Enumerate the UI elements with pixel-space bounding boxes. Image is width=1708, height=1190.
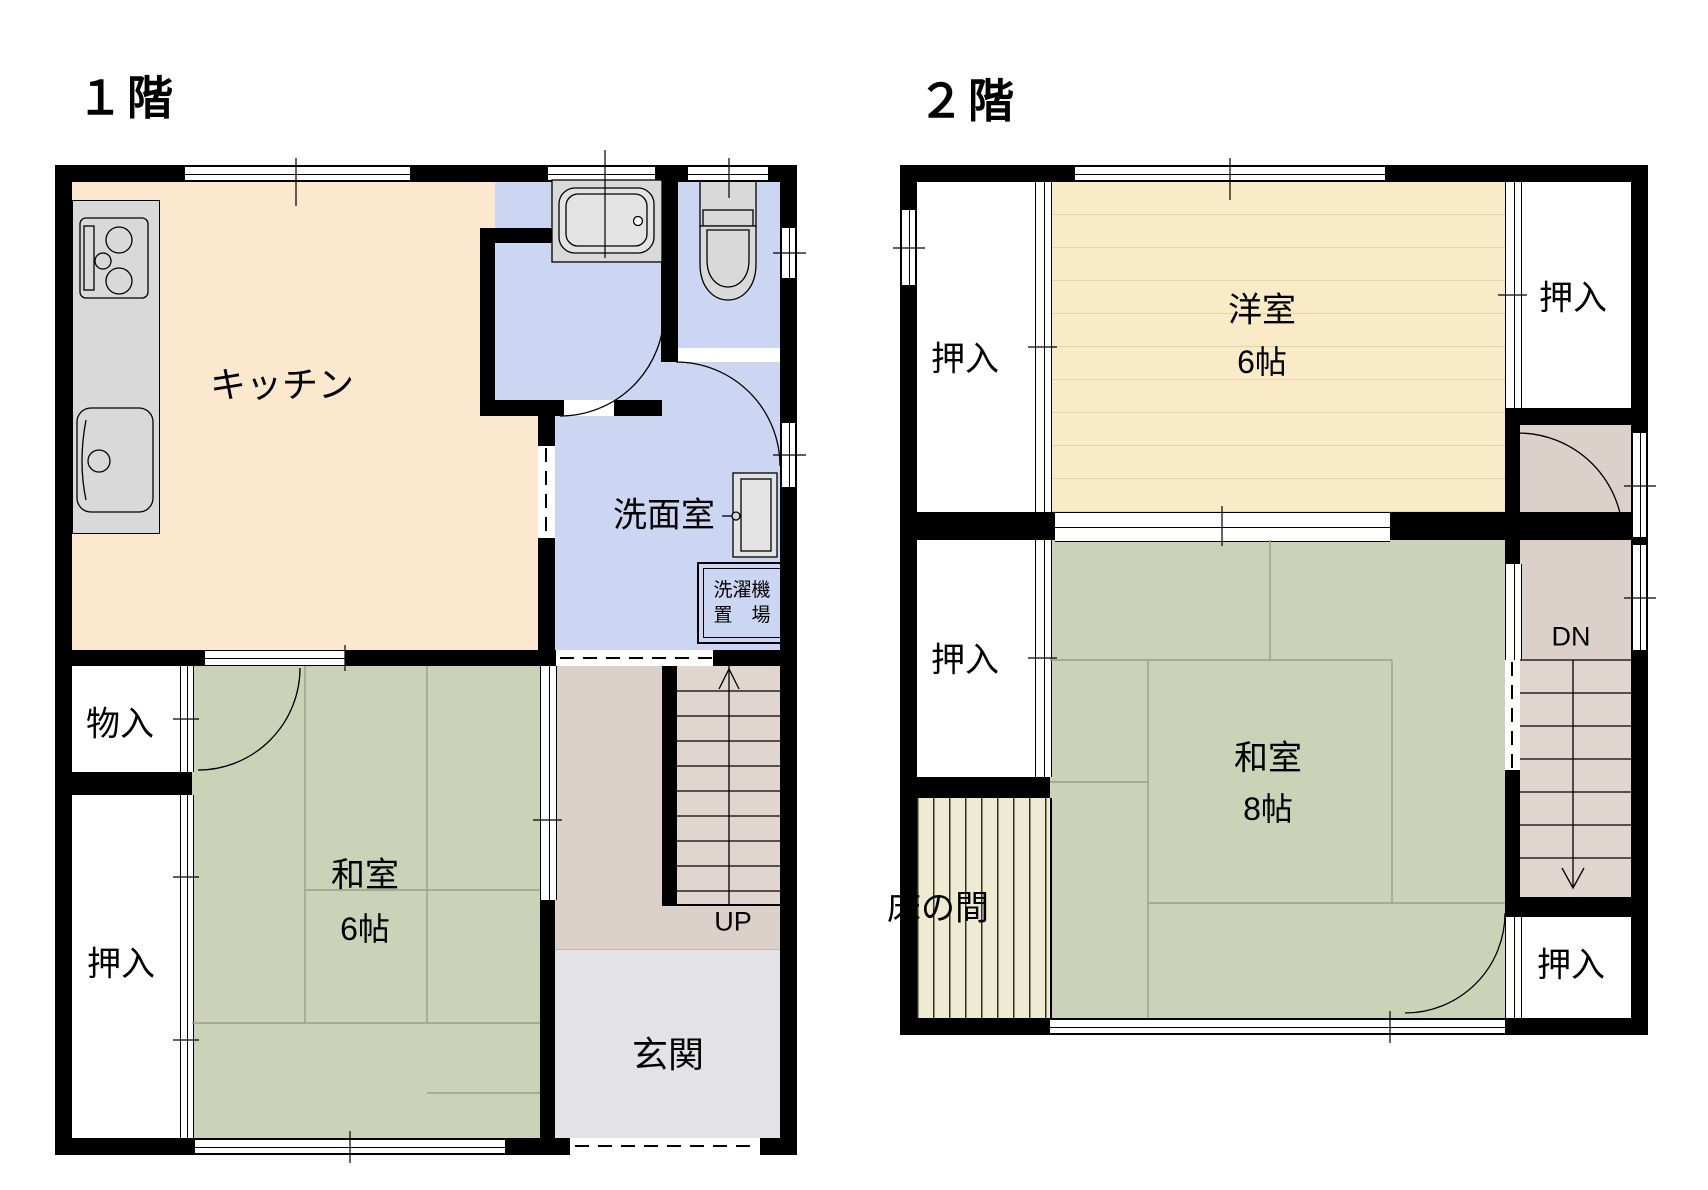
washroom-label: 洗面室 <box>613 488 715 537</box>
western-right-wall <box>1505 425 1520 512</box>
kitchen-window <box>185 165 410 182</box>
storage-label: 物入 <box>86 697 154 746</box>
closet-tr-label: 押入 <box>1539 271 1607 320</box>
western-size-label: 6帖 <box>1237 337 1287 383</box>
f1-wall-right <box>780 165 797 1155</box>
closet-tl-window <box>900 210 917 285</box>
tatami6-hall-sliding-door <box>540 666 557 900</box>
floorplan-canvas: １階 キッチン 洗面室 物入 押入 和室 6帖 玄関 UP <box>0 0 1708 1190</box>
western-tatami-sliding-door <box>1055 512 1390 542</box>
tatami6-size-label: 6帖 <box>340 904 390 950</box>
closet1-door <box>180 795 194 1138</box>
western-window <box>1075 165 1385 182</box>
tatami8-window <box>1050 1018 1505 1035</box>
tatami6-label: 和室 <box>331 848 399 897</box>
bath-wall-bottom-left <box>480 400 564 416</box>
f1-wall-top <box>55 165 797 182</box>
tatami6-right-wall-lower <box>540 900 555 1138</box>
tatami8-right-wall-stub <box>1505 540 1520 564</box>
washroom-floor-upper <box>662 362 780 416</box>
kitchen-washroom-wall-upper <box>538 416 555 446</box>
closet-br-door <box>1505 917 1522 1018</box>
closet1-label: 押入 <box>87 937 155 986</box>
hall2-window-upper <box>1631 433 1648 537</box>
toilet-side-window <box>780 228 797 278</box>
storage-closet-divider-wall <box>55 772 192 795</box>
laundry-line1: 洗濯機 <box>713 578 770 603</box>
storage-door <box>180 666 194 772</box>
closet-ml-bottom-wall <box>900 777 1050 798</box>
kitchen-floor-lower-strip <box>480 416 538 650</box>
western-room-label: 洋室 <box>1228 283 1296 332</box>
tokonoma-label: 床の間 <box>887 881 989 930</box>
stairs-dn-label: DN <box>1552 622 1591 653</box>
entrance-door <box>570 1138 760 1155</box>
closet-tr-bottom-wall <box>1505 408 1648 425</box>
stairs2-bottom-wall <box>1505 897 1631 917</box>
tatami8-hall-doorway <box>1505 660 1520 770</box>
entrance-label: 玄関 <box>632 1026 704 1078</box>
bathroom-floor <box>495 182 662 400</box>
stairs2-floor <box>1520 660 1631 897</box>
closet-tr-door <box>1505 182 1522 408</box>
tatami6-sliding-door <box>205 650 345 666</box>
tatami8-size-label: 8帖 <box>1243 784 1293 830</box>
bath-wall-bottom-right <box>614 400 662 416</box>
laundry-machine-box: 洗濯機 置 場 <box>697 562 787 644</box>
tatami6-window <box>195 1138 505 1155</box>
tatami8-right-wall-lower <box>1505 770 1520 917</box>
toilet-floor <box>678 182 780 348</box>
hall-entrance-divider <box>555 949 780 950</box>
laundry-machine-text: 洗濯機 置 場 <box>699 564 785 642</box>
floor1-title: １階 <box>77 62 177 128</box>
washroom-side-window <box>780 423 797 487</box>
bath-window <box>548 165 655 182</box>
closet-tl-door <box>1035 182 1052 512</box>
hall2-window-lower <box>1631 545 1648 650</box>
f1-wall-left <box>55 165 72 1155</box>
kitchen-washroom-wall-lower <box>538 538 555 650</box>
toilet-wall-left <box>661 165 678 362</box>
tatami6-floor <box>192 666 540 1138</box>
closet-ml-door <box>1035 540 1052 777</box>
toilet-window <box>688 165 768 182</box>
kitchen-counter <box>72 200 160 534</box>
floor2-title: ２階 <box>918 65 1018 131</box>
kitchen-washroom-doorway <box>538 446 555 538</box>
kitchen-label: キッチン <box>210 356 354 408</box>
tatami8-label: 和室 <box>1234 731 1302 780</box>
tatami8-hall-sliding-door <box>1505 564 1522 660</box>
stairs1-side-wall <box>662 666 677 905</box>
bath-wall-top <box>480 228 552 243</box>
bath-wall-left <box>480 228 495 400</box>
closet-tl-label: 押入 <box>931 332 999 381</box>
stairs1-floor <box>677 666 780 905</box>
washroom-hall-doorway <box>556 650 713 666</box>
closet-ml-label: 押入 <box>931 633 999 682</box>
closet-br-label: 押入 <box>1537 938 1605 987</box>
stairs-up-label: UP <box>714 907 752 938</box>
laundry-line2: 置 場 <box>713 603 770 628</box>
